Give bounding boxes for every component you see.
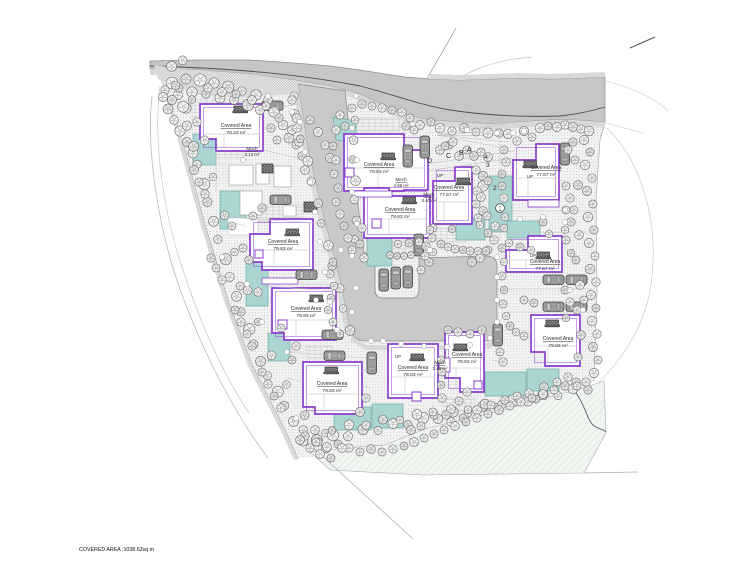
svg-text:Mech: Mech (423, 192, 435, 197)
svg-text:3.40 m²: 3.40 m² (433, 366, 448, 371)
svg-text:Covered Area: Covered Area (543, 336, 574, 342)
svg-text:79.83 m²: 79.83 m² (296, 313, 316, 319)
svg-text:Covered Area: Covered Area (291, 306, 322, 312)
svg-text:Covered Area: Covered Area (317, 381, 348, 387)
svg-text:Covered Area: Covered Area (398, 365, 429, 371)
svg-text:Covered Area: Covered Area (385, 207, 416, 213)
svg-text:Mech: Mech (246, 146, 258, 151)
svg-text:79.83 m²: 79.83 m² (403, 372, 423, 378)
svg-text:Mech: Mech (395, 177, 407, 182)
svg-text:Covered Area: Covered Area (452, 352, 483, 358)
svg-text:A: A (467, 147, 472, 154)
svg-text:2.13 m²: 2.13 m² (245, 152, 260, 157)
svg-text:Covered Area: Covered Area (530, 259, 561, 265)
svg-text:77.67 m²: 77.67 m² (535, 266, 555, 272)
svg-text:Mech: Mech (434, 360, 446, 365)
svg-text:UP: UP (527, 174, 533, 179)
svg-text:2: 2 (493, 185, 497, 192)
svg-text:Covered Area: Covered Area (434, 185, 465, 191)
svg-text:Covered Area: Covered Area (268, 239, 299, 245)
svg-text:Covered Area: Covered Area (221, 123, 252, 129)
svg-text:77.67 m²: 77.67 m² (439, 192, 459, 198)
svg-text:77.67 m²: 77.67 m² (536, 172, 556, 178)
svg-text:UP: UP (395, 354, 401, 359)
svg-text:3.40 m²: 3.40 m² (422, 198, 437, 203)
svg-text:79.83 m²: 79.83 m² (369, 169, 389, 175)
svg-text:UP: UP (530, 253, 536, 258)
svg-text:70.23 m²: 70.23 m² (226, 130, 246, 136)
svg-text:B: B (459, 150, 464, 157)
svg-text:Covered Area: Covered Area (531, 165, 562, 171)
svg-text:UP: UP (437, 173, 443, 178)
svg-text:Covered Area: Covered Area (364, 162, 395, 168)
svg-text:4.59 m²: 4.59 m² (394, 183, 409, 188)
svg-text:79.83 m²: 79.83 m² (457, 359, 477, 365)
svg-text:3: 3 (486, 162, 490, 169)
svg-text:79.83 m²: 79.83 m² (548, 343, 568, 349)
svg-text:79.83 m²: 79.83 m² (390, 214, 410, 220)
svg-text:79.83 m²: 79.83 m² (273, 246, 293, 252)
svg-text:79.83 m²: 79.83 m² (322, 388, 342, 394)
svg-text:C: C (446, 153, 451, 160)
svg-text:COVERED AREA :1038.63sq.m: COVERED AREA :1038.63sq.m (79, 547, 155, 553)
